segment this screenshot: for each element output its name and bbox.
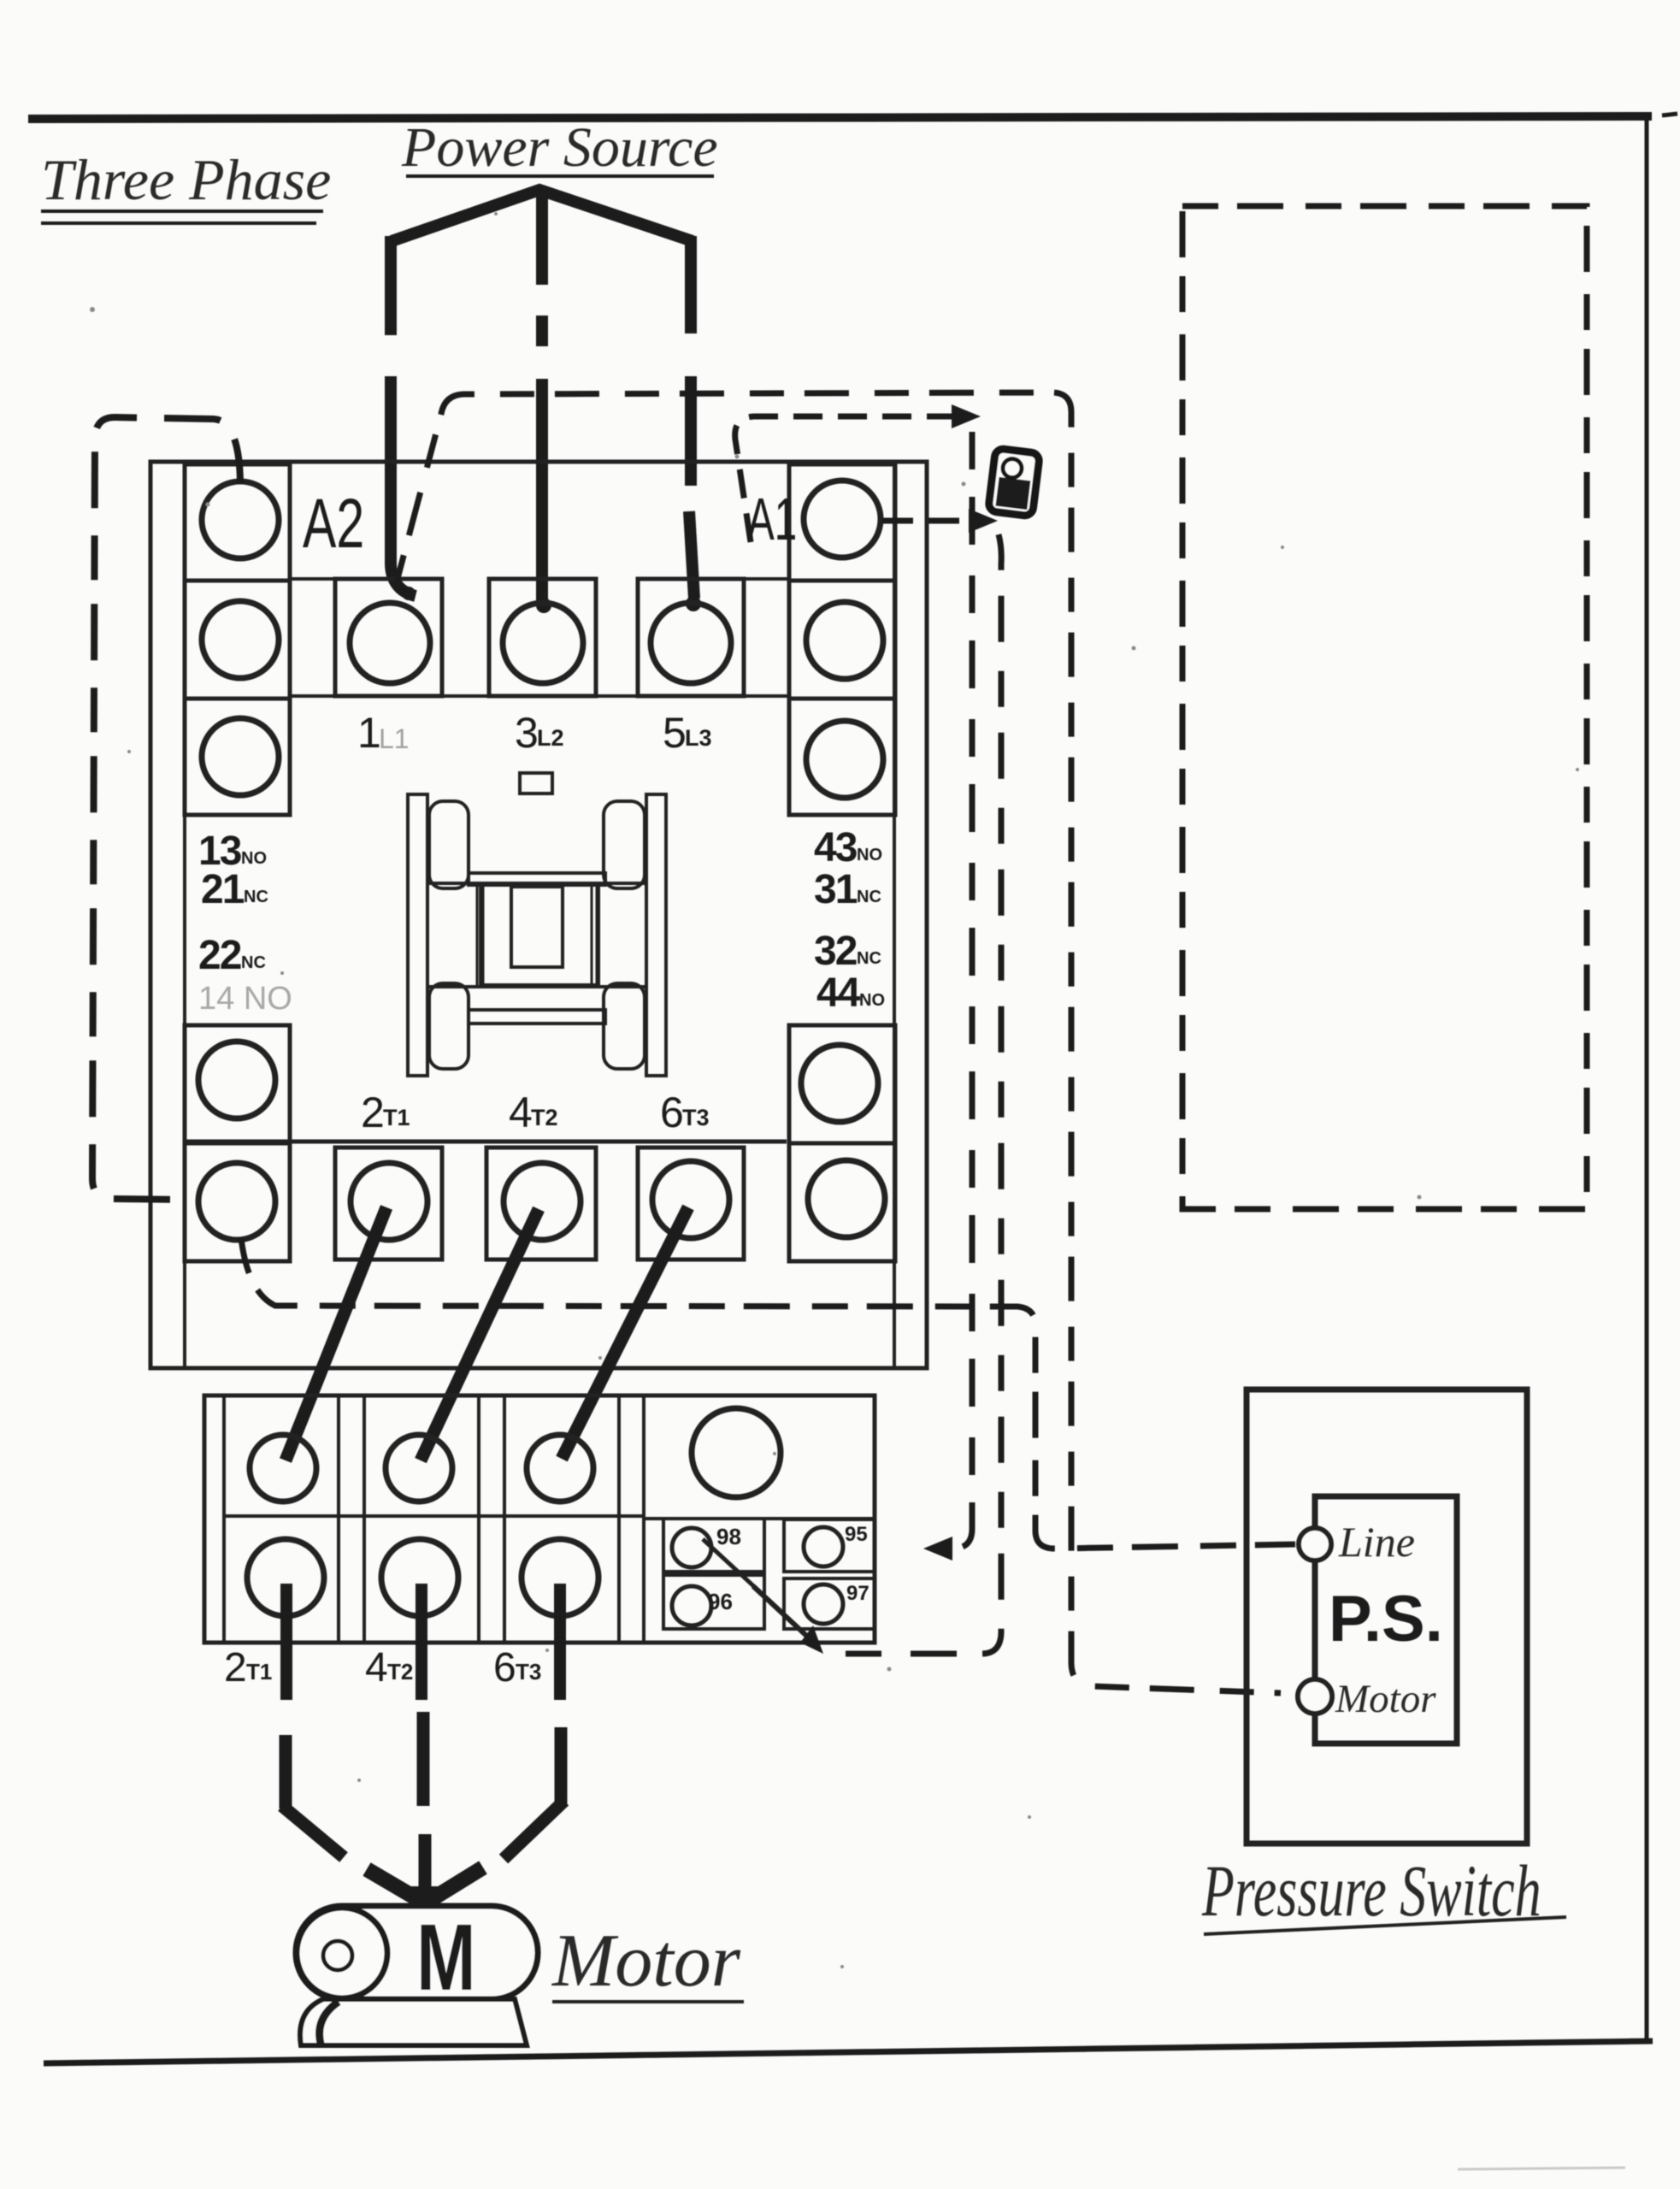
svg-text:Motor: Motor [551,1920,741,2003]
svg-text:96: 96 [708,1589,733,1614]
svg-text:A2: A2 [303,485,364,563]
svg-text:NO: NO [857,846,882,864]
svg-text:32: 32 [814,929,857,974]
svg-text:T2: T2 [387,1659,413,1685]
svg-text:T1: T1 [246,1659,272,1685]
svg-text:43: 43 [814,825,857,870]
svg-text:NC: NC [244,888,268,906]
svg-text:L3: L3 [685,725,712,751]
svg-text:Motor: Motor [1335,1677,1436,1721]
svg-text:4: 4 [365,1645,388,1690]
svg-text:6: 6 [493,1645,516,1690]
svg-text:NO: NO [241,849,267,868]
svg-text:Power Source: Power Source [401,116,718,179]
svg-text:NO: NO [859,991,885,1010]
svg-text:31: 31 [814,867,858,912]
svg-text:NC: NC [241,953,266,972]
svg-text:97: 97 [846,1582,869,1605]
svg-text:NC: NC [857,888,881,906]
svg-text:5: 5 [663,709,687,757]
svg-text:4: 4 [509,1089,533,1136]
svg-text:T1: T1 [383,1105,410,1130]
svg-text:44: 44 [816,971,861,1016]
svg-text:T3: T3 [516,1659,541,1685]
svg-text:98: 98 [716,1524,741,1549]
svg-text:L1: L1 [379,723,410,754]
svg-text:21: 21 [201,867,245,912]
svg-text:6: 6 [660,1089,684,1136]
svg-text:1: 1 [357,709,381,757]
svg-text:2: 2 [361,1089,385,1136]
svg-text:22: 22 [198,933,241,978]
svg-text:2: 2 [224,1645,247,1690]
svg-text:P.S.: P.S. [1329,1583,1443,1655]
svg-text:L2: L2 [537,725,564,751]
svg-text:Pressure Switch: Pressure Switch [1201,1850,1541,1932]
svg-text:Three Phase: Three Phase [41,147,331,212]
svg-text:95: 95 [845,1523,868,1546]
svg-text:T3: T3 [682,1105,710,1130]
svg-text:A1: A1 [747,486,797,552]
svg-text:T2: T2 [531,1105,558,1130]
svg-text:Line: Line [1338,1518,1415,1566]
svg-text:3: 3 [515,709,539,757]
svg-text:NC: NC [857,949,881,968]
svg-text:M: M [416,1905,476,2010]
svg-text:14 NO: 14 NO [198,981,292,1017]
